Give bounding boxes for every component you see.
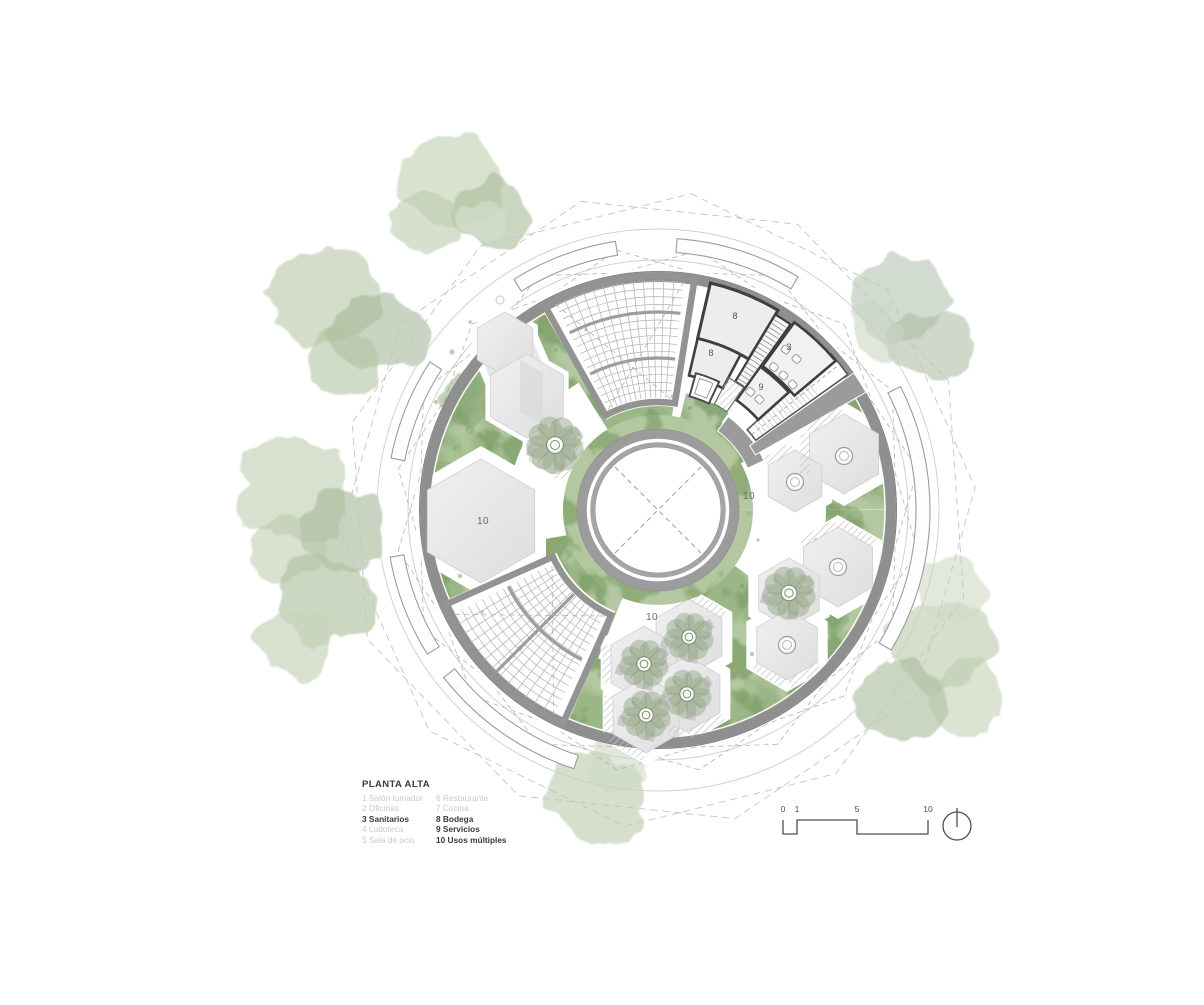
scale-tick-1: 1 xyxy=(795,804,800,814)
area-label-usos-multiples-right: 10 xyxy=(743,491,755,502)
legend-item-4: 4 Ludoteca xyxy=(362,824,436,834)
skylight xyxy=(787,474,804,491)
scale-bar: 0 1 5 10 xyxy=(781,804,933,834)
room-label-sanitarios: 3 xyxy=(786,342,791,352)
room-label-bodega-upper: 8 xyxy=(732,311,737,321)
legend-item-2: 2 Oficinas xyxy=(362,803,436,813)
central-patio xyxy=(563,415,753,605)
legend-item-6: 6 Restaurante xyxy=(436,793,507,803)
room-label-servicios: 9 xyxy=(758,382,763,392)
site-plan xyxy=(240,137,1002,844)
scale-tick-10: 10 xyxy=(923,804,933,814)
floor-plan-stage: 8 8 3 9 10 10 10 0 1 5 10 PLANTA ALTA 1 … xyxy=(0,0,1204,1000)
legend-item-5: 5 Sala de ocio xyxy=(362,835,436,845)
area-label-usos-multiples-bottom: 10 xyxy=(646,612,658,623)
area-label-usos-multiples-left: 10 xyxy=(477,516,489,527)
legend-item-3: 3 Sanitarios xyxy=(362,814,436,824)
skylight xyxy=(830,559,847,576)
scale-tick-5: 5 xyxy=(855,804,860,814)
legend-title: PLANTA ALTA xyxy=(362,779,582,790)
legend: PLANTA ALTA 1 Salón fumador 2 Oficinas 3… xyxy=(362,779,582,845)
north-arrow-icon xyxy=(943,808,971,840)
legend-item-7: 7 Cocina xyxy=(436,803,507,813)
skylight xyxy=(836,448,853,465)
floor-plan-canvas: 8 8 3 9 10 10 10 0 1 5 10 xyxy=(0,0,1204,1000)
legend-item-10: 10 Usos múltiples xyxy=(436,835,507,845)
legend-item-9: 9 Servicios xyxy=(436,824,507,834)
scale-bar-line xyxy=(783,820,928,834)
legend-item-8: 8 Bodega xyxy=(436,814,507,824)
legend-item-1: 1 Salón fumador xyxy=(362,793,436,803)
scale-tick-0: 0 xyxy=(781,804,786,814)
skylight xyxy=(779,637,796,654)
room-label-bodega-lower: 8 xyxy=(708,348,713,358)
